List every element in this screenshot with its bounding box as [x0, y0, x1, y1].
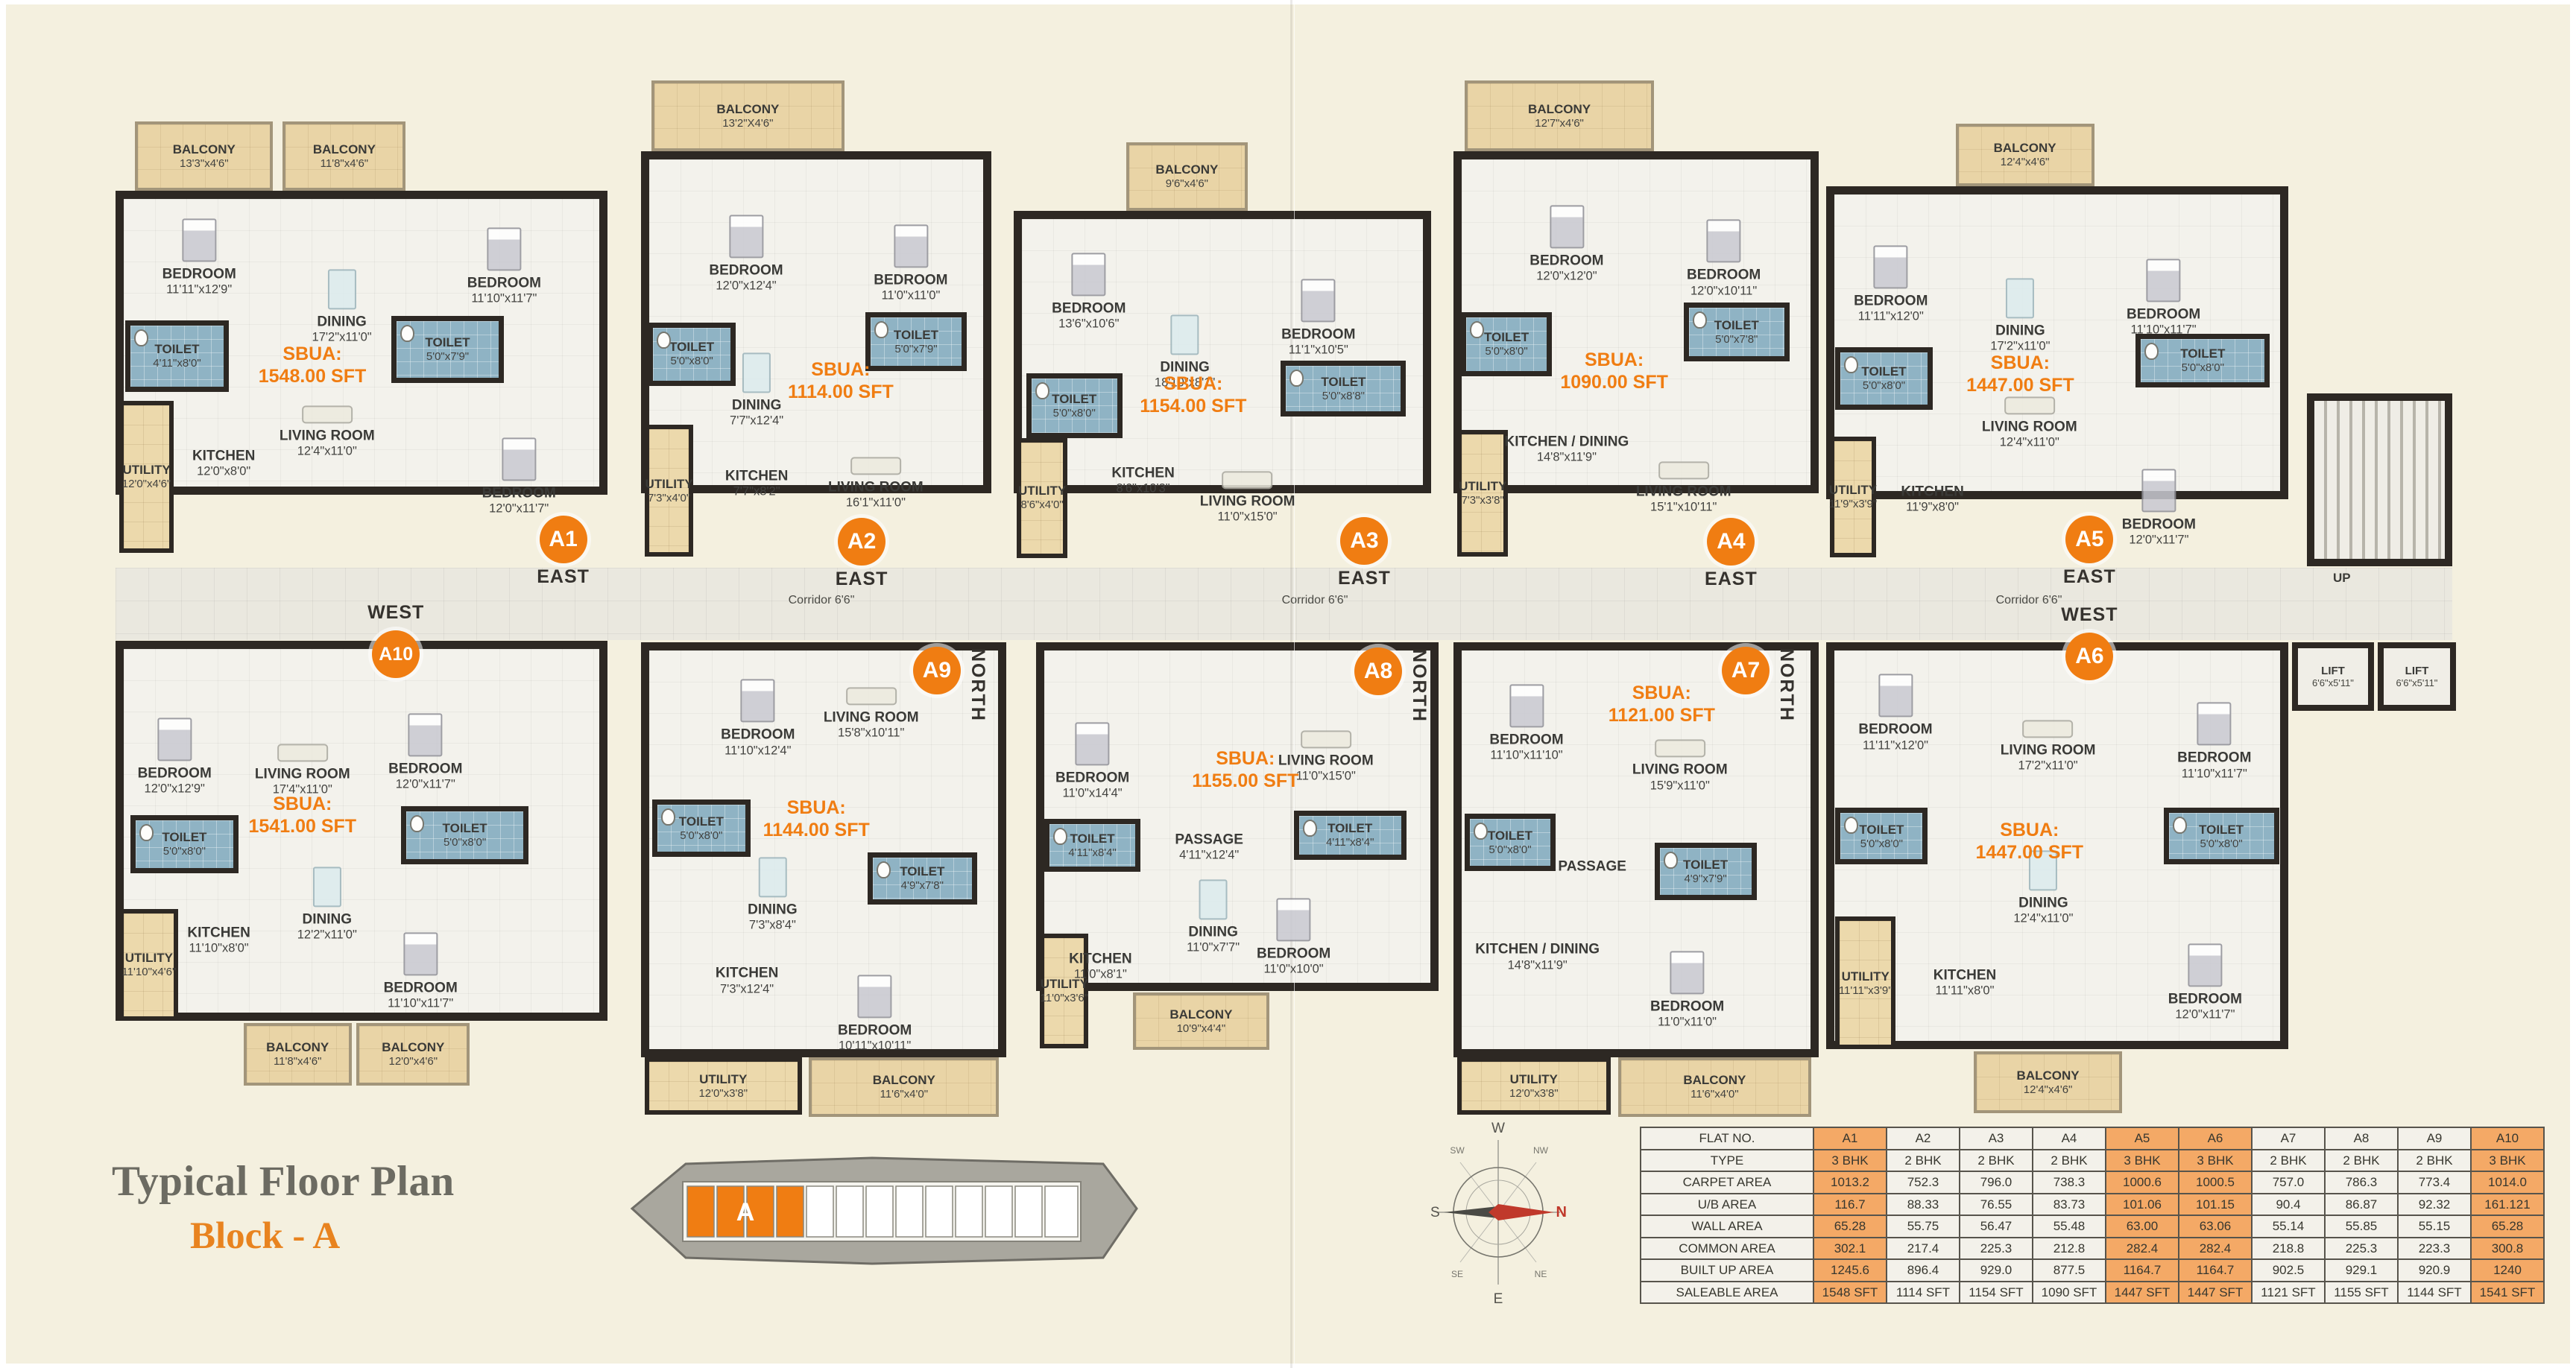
lift-2: LIFT 6'6"x5'11" [2378, 642, 2456, 711]
bed-icon [1670, 951, 1705, 995]
sbua-label: SBUA:1548.00 SFT [259, 343, 367, 387]
bed-icon [1076, 722, 1110, 765]
sbua-value: 1121.00 SFT [1609, 704, 1715, 726]
room-name: PASSAGE [1175, 832, 1243, 847]
sbua-title: SBUA: [1560, 349, 1668, 371]
unit-marker-a7: A7 [1722, 647, 1770, 694]
table-icon [742, 353, 771, 393]
table-icon [313, 867, 341, 907]
lift-label: LIFT [2321, 665, 2345, 677]
lift-label: LIFT [2405, 665, 2429, 677]
room-name: KITCHEN [1901, 484, 1963, 499]
room-name: LIVING ROOM [280, 428, 375, 443]
table-cell: 55.14 [2253, 1216, 2324, 1237]
table-cell: 773.4 [2399, 1172, 2470, 1193]
compass-sw: SW [1450, 1145, 1465, 1156]
unit-a4: BALCONY12'7"x4'6"BEDROOM12'0"x12'0"BEDRO… [1453, 78, 1819, 566]
sbua-title: SBUA: [249, 793, 357, 815]
balcony-zone: BALCONY12'7"x4'6" [1465, 80, 1655, 151]
sbua-title: SBUA: [1140, 373, 1246, 395]
room-name: TOILET [669, 340, 714, 354]
utility-zone: UTILITY11'10"x4'6" [119, 909, 178, 1021]
room-dims: 13'2"X4'6" [722, 117, 773, 130]
room-name: BEDROOM [1257, 946, 1330, 961]
sofa-icon [1301, 730, 1351, 748]
room-name: UTILITY [1829, 483, 1877, 497]
room-dims: 12'0"x11'7" [489, 502, 549, 516]
room-name: DINING [1995, 323, 2045, 338]
toilet-icon [1474, 823, 1488, 840]
sbua-label: SBUA:1447.00 SFT [1976, 819, 2084, 864]
room-dims: 4'11"x8'0" [153, 357, 201, 370]
room-name: KITCHEN [192, 448, 255, 463]
room-label: DINING12'2"x11'0" [297, 867, 357, 942]
room-label: LIVING ROOM12'4"x11'0" [280, 405, 375, 458]
table-cell: 55.15 [2399, 1216, 2470, 1237]
room-dims: 11'11"x12'9" [166, 283, 232, 297]
sbua-label: SBUA:1154.00 SFT [1140, 373, 1246, 417]
room-name: DINING [1188, 924, 1238, 940]
room-name: BEDROOM [1529, 253, 1603, 268]
room-dims: 12'4"x11'0" [2013, 912, 2073, 926]
room-label: DINING17'2"x11'0" [312, 269, 372, 344]
unit-a8: BEDROOM11'0"x14'4"LIVING ROOM11'0"x15'0"… [1036, 642, 1439, 1052]
room-name: TOILET [443, 821, 487, 835]
room-name: DINING [748, 902, 798, 918]
bed-icon [894, 224, 928, 267]
room-dims: 4'9"x7'9" [1684, 873, 1726, 885]
sbua-value: 1447.00 SFT [1976, 841, 2084, 864]
balcony-zone: BALCONY11'8"x4'6" [244, 1023, 352, 1086]
room-name: TOILET [1859, 823, 1904, 837]
room-name: BALCONY [2017, 1068, 2080, 1083]
room-name: KITCHEN / DINING [1475, 942, 1600, 957]
table-icon [758, 858, 786, 898]
room-label: BEDROOM11'0"x10'0" [1257, 898, 1330, 976]
toilet-zone: TOILET5'0"x8'0" [1461, 312, 1553, 376]
room-label: BEDROOM11'11"x12'9" [162, 218, 236, 297]
room-label: KITCHEN / DINING14'8"x11'9" [1475, 942, 1600, 972]
sofa-icon [1222, 471, 1273, 489]
room-name: BEDROOM [384, 980, 458, 995]
table-cell: 2 BHK [2326, 1150, 2397, 1171]
room-label: BEDROOM11'10"x11'7" [2177, 703, 2251, 781]
toilet-icon [1664, 852, 1678, 869]
toilet-zone: TOILET5'0"x8'0" [130, 815, 239, 873]
table-cell: 300.8 [2472, 1238, 2543, 1259]
room-label: BEDROOM12'0"x11'7" [482, 437, 556, 516]
room-name: PASSAGE [1558, 858, 1626, 874]
table-row-label: BUILT UP AREA [1641, 1260, 1813, 1281]
room-name: BEDROOM [467, 275, 541, 291]
sbua-value: 1548.00 SFT [259, 365, 367, 387]
room-label: PASSAGE4'11"x12'4" [1175, 832, 1243, 862]
room-name: BALCONY [1155, 162, 1218, 177]
room-dims: 5'0"x7'9" [426, 350, 469, 363]
room-dims: 11'11"x12'0" [1863, 738, 1928, 753]
direction-label: EAST [1338, 568, 1391, 589]
room-dims: 11'1"x10'5" [1289, 343, 1348, 357]
table-row-label: CARPET AREA [1641, 1172, 1813, 1193]
bed-icon [1509, 684, 1544, 727]
bed-icon [741, 680, 775, 723]
room-name: BEDROOM [2122, 516, 2196, 532]
room-name: LIVING ROOM [1632, 762, 1728, 778]
unit-a1: BALCONY13'3"x4'6"BALCONY11'8"x4'6"BEDROO… [116, 119, 607, 566]
room-label: KITCHEN7'3"x12'4" [716, 966, 778, 996]
balcony-zone: BALCONY12'4"x4'6" [1956, 124, 2094, 186]
room-dims: 11'9"x8'0" [1906, 501, 1959, 515]
direction-label: EAST [2063, 566, 2116, 588]
toilet-icon [874, 321, 888, 338]
table-cell: 786.3 [2326, 1172, 2397, 1193]
sofa-icon [277, 744, 328, 761]
sbua-title: SBUA: [1192, 747, 1298, 770]
room-label: KITCHEN11'11"x8'0" [1933, 968, 1996, 998]
table-cell: 1548 SFT [1814, 1282, 1886, 1303]
table-cell: 1000.6 [2106, 1172, 2178, 1193]
room-dims: 11'11"x8'0" [1936, 984, 1995, 998]
toilet-zone: TOILET5'0"x8'0" [652, 799, 751, 857]
room-name: DINING [732, 398, 782, 414]
room-name: UTILITY [1018, 484, 1066, 498]
room-label: BEDROOM12'0"x12'0" [1529, 205, 1603, 283]
room-label: KITCHEN11'0"x8'1" [1069, 951, 1131, 981]
room-name: TOILET [1052, 392, 1096, 406]
room-dims: 15'9"x11'0" [1650, 779, 1710, 793]
room-label: BEDROOM11'10"x11'7" [2127, 259, 2200, 337]
compass-west: W [1491, 1121, 1505, 1136]
unit-a5: BALCONY12'4"x4'6"BEDROOM11'11"x12'0"BEDR… [1826, 119, 2288, 566]
room-dims: 12'4"x11'0" [2000, 436, 2059, 450]
room-name: UTILITY [125, 951, 173, 965]
room-dims: 10'9"x4'4" [1177, 1022, 1226, 1035]
bed-icon [2188, 944, 2222, 987]
toilet-icon [410, 815, 424, 832]
sbua-label: SBUA:1144.00 SFT [763, 797, 870, 841]
table-flat-header: A8 [2326, 1128, 2397, 1149]
room-dims: 15'8"x10'11" [838, 726, 904, 741]
room-name: KITCHEN [716, 966, 778, 981]
room-name: LIVING ROOM [824, 709, 919, 725]
room-dims: 12'0"x3'8" [698, 1087, 748, 1100]
room-dims: 11'0"x11'0" [1658, 1016, 1717, 1030]
room-dims: 5'0"x8'0" [671, 355, 713, 367]
toilet-zone: TOILET4'9"x7'8" [868, 852, 977, 905]
sbua-label: SBUA:1447.00 SFT [1966, 352, 2074, 396]
table-cell: 3 BHK [2472, 1150, 2543, 1171]
table-cell: 56.47 [1960, 1216, 2032, 1237]
room-name: BEDROOM [1650, 999, 1724, 1015]
room-name: BEDROOM [482, 485, 556, 501]
toilet-zone: TOILET5'0"x8'0" [1026, 373, 1123, 437]
table-cell: 76.55 [1960, 1194, 2032, 1215]
room-dims: 16'1"x11'0" [846, 495, 906, 510]
room-dims: 5'0"x8'0" [680, 829, 722, 842]
room-dims: 5'0"x7'9" [894, 343, 937, 355]
plan-title: Typical Floor Plan Block - A [112, 1157, 455, 1258]
room-name: LIVING ROOM [1982, 419, 2077, 434]
table-row-label: U/B AREA [1641, 1194, 1813, 1215]
room-label: BEDROOM11'10"x11'7" [467, 227, 541, 305]
room-dims: 10'11"x10'11" [839, 1039, 911, 1054]
area-table: FLAT NO.A1A2A3A4A5A6A7A8A9A10TYPE3 BHK2 … [1640, 1127, 2545, 1304]
bed-icon [487, 227, 521, 270]
toilet-zone: TOILET5'0"x7'8" [1684, 303, 1790, 361]
sofa-icon [846, 687, 897, 705]
room-label: BEDROOM12'0"x11'7" [388, 713, 462, 791]
bed-icon [1277, 898, 1311, 941]
utility-zone: UTILITY12'0"x4'6" [119, 401, 174, 553]
direction-label: NORTH [1775, 648, 1797, 722]
compass-se: SE [1451, 1269, 1463, 1279]
table-cell: 88.33 [1887, 1194, 1959, 1215]
room-dims: 12'4"x11'0" [297, 445, 357, 459]
bed-icon [502, 437, 536, 481]
table-cell: 83.73 [2033, 1194, 2105, 1215]
room-dims: 14'8"x11'9" [1537, 450, 1597, 464]
bed-icon [1301, 279, 1336, 322]
unit-marker-a9: A9 [913, 647, 961, 694]
toilet-zone: TOILET4'11"x8'4" [1294, 811, 1407, 860]
room-name: BEDROOM [1489, 732, 1563, 747]
room-dims: 5'0"x8'8" [1322, 390, 1365, 402]
room-label: LIVING ROOM11'0"x15'0" [1200, 471, 1295, 524]
lift-dims: 6'6"x5'11" [2312, 677, 2354, 688]
room-name: BEDROOM [1858, 722, 1932, 738]
room-name: BEDROOM [162, 266, 236, 282]
compass-needle-north [1489, 1204, 1554, 1220]
compass-north: N [1556, 1204, 1567, 1220]
sbua-value: 1114.00 SFT [788, 381, 894, 403]
room-name: BALCONY [1683, 1073, 1746, 1087]
bed-icon [729, 215, 763, 258]
room-label: LIVING ROOM15'1"x10'11" [1636, 462, 1731, 515]
room-label: DINING7'7"x12'4" [730, 353, 783, 428]
room-name: LIVING ROOM [1636, 484, 1731, 500]
table-flat-header: A2 [1887, 1128, 1959, 1149]
bed-icon [1707, 220, 1741, 263]
room-dims: 11'10"x11'7" [471, 292, 537, 306]
table-cell: 752.3 [1887, 1172, 1959, 1193]
room-dims: 11'8"x4'6" [274, 1055, 321, 1068]
unit-marker-a8: A8 [1354, 647, 1402, 695]
room-name: BALCONY [266, 1040, 329, 1054]
page-fold-highlight [1294, 0, 1295, 1368]
table-cell: 101.06 [2106, 1194, 2178, 1215]
utility-zone: UTILITY11'9"x3'9" [1830, 437, 1876, 557]
room-name: UTILITY [1459, 479, 1506, 493]
room-name: BEDROOM [1687, 267, 1761, 283]
room-name: BALCONY [313, 142, 376, 156]
table-flat-header: A4 [2033, 1128, 2105, 1149]
sofa-icon [302, 405, 353, 423]
room-name: BEDROOM [1052, 300, 1126, 316]
room-label: BEDROOM12'0"x11'7" [2168, 944, 2242, 1022]
table-cell: 896.4 [1887, 1260, 1959, 1281]
table-flat-header: A1 [1814, 1128, 1886, 1149]
table-cell: 1000.5 [2179, 1172, 2251, 1193]
unit-a9: BEDROOM11'10"x12'4"LIVING ROOM15'8"x10'1… [641, 642, 1006, 1119]
table-cell: 282.4 [2106, 1238, 2178, 1259]
room-name: BALCONY [1528, 102, 1591, 116]
room-name: BALCONY [873, 1073, 935, 1087]
room-name: KITCHEN [187, 925, 250, 940]
room-name: UTILITY [1842, 969, 1890, 984]
room-name: TOILET [1683, 858, 1728, 872]
room-dims: 11'8"x4'6" [321, 157, 368, 170]
table-row-label: COMMON AREA [1641, 1238, 1813, 1259]
room-dims: 11'11"x12'0" [1858, 310, 1924, 324]
compass-nw: NW [1533, 1145, 1549, 1156]
sbua-title: SBUA: [1609, 682, 1715, 704]
table-cell: 1013.2 [1814, 1172, 1886, 1193]
toilet-zone: TOILET5'0"x8'0" [2135, 334, 2270, 387]
table-cell: 1240 [2472, 1260, 2543, 1281]
room-dims: 4'11"x8'4" [1326, 836, 1374, 849]
table-corner-cell: FLAT NO. [1641, 1128, 1813, 1149]
room-dims: 11'0"x15'0" [1218, 510, 1278, 525]
floor-plan-page: UP LIFT 6'6"x5'11" LIFT 6'6"x5'11" Corri… [0, 0, 2576, 1368]
direction-label: NORTH [967, 648, 988, 722]
table-cell: 1447 SFT [2106, 1282, 2178, 1303]
room-dims: 11'10"x12'4" [724, 744, 791, 758]
balcony-zone: BALCONY12'0"x4'6" [356, 1023, 470, 1086]
room-name: BEDROOM [388, 761, 462, 776]
room-dims: 12'0"x11'7" [2129, 533, 2188, 548]
room-name: TOILET [162, 830, 206, 844]
room-dims: 12'0"x11'7" [396, 778, 455, 792]
room-label: BEDROOM11'10"x11'7" [384, 932, 458, 1010]
table-cell: 63.00 [2106, 1216, 2178, 1237]
table-cell: 116.7 [1814, 1194, 1886, 1215]
table-cell: 302.1 [1814, 1238, 1886, 1259]
room-dims: 11'9"x3'9" [1829, 498, 1877, 510]
room-name: TOILET [1328, 821, 1372, 835]
room-name: BEDROOM [2168, 992, 2242, 1007]
unit-marker-a10: A10 [372, 630, 420, 678]
room-dims: 8'6"x10'3" [1117, 482, 1170, 496]
room-name: LIVING ROOM [2001, 742, 2096, 758]
table-cell: 738.3 [2033, 1172, 2105, 1193]
balcony-zone: BALCONY9'6"x4'6" [1126, 142, 1247, 211]
bed-icon [1550, 205, 1584, 248]
sofa-icon [1655, 740, 1705, 758]
room-label: BEDROOM12'0"x11'7" [2122, 469, 2196, 547]
direction-label: EAST [537, 566, 590, 588]
room-label: DINING17'2"x11'0" [1990, 278, 2050, 353]
toilet-zone: TOILET5'0"x8'0" [1835, 347, 1932, 410]
table-cell: 1121 SFT [2253, 1282, 2324, 1303]
room-label: BEDROOM11'11"x12'0" [1854, 245, 1928, 323]
page-fold [1290, 0, 1292, 1368]
room-dims: 11'6"x4'0" [880, 1088, 928, 1101]
room-dims: 5'0"x8'0" [443, 836, 486, 849]
room-label: BEDROOM12'0"x12'4" [709, 215, 783, 293]
room-name: BALCONY [1994, 141, 2056, 155]
room-name: LIVING ROOM [255, 766, 350, 782]
toilet-icon [134, 329, 148, 346]
table-cell: 757.0 [2253, 1172, 2324, 1193]
lift-dims: 6'6"x5'11" [2396, 677, 2438, 688]
room-dims: 4'9"x7'8" [901, 879, 944, 892]
table-cell: 2 BHK [1960, 1150, 2032, 1171]
room-name: BEDROOM [1854, 293, 1928, 308]
toilet-icon [1470, 321, 1484, 338]
toilet-icon [2144, 343, 2159, 360]
utility-zone: UTILITY7'3"x4'0" [645, 425, 694, 557]
table-flat-header: A3 [1960, 1128, 2032, 1149]
room-name: BEDROOM [721, 727, 795, 743]
room-dims: 8'6"x4'0" [1020, 498, 1063, 511]
sbua-title: SBUA: [259, 343, 367, 365]
table-icon [2006, 278, 2034, 318]
toilet-icon [2173, 817, 2187, 834]
room-label: BEDROOM11'0"x11'0" [1650, 951, 1724, 1030]
unit-marker-a2: A2 [838, 518, 885, 566]
unit-marker-a3: A3 [1340, 517, 1388, 565]
room-label: BEDROOM11'11"x12'0" [1858, 674, 1932, 753]
room-label: BEDROOM12'0"x10'11" [1687, 220, 1761, 298]
room-name: BEDROOM [2127, 306, 2200, 322]
room-dims: 12'0"x10'11" [1690, 284, 1757, 298]
room-dims: 11'11"x3'9" [1839, 984, 1892, 997]
room-name: TOILET [1321, 375, 1366, 389]
room-name: TOILET [1070, 832, 1115, 846]
room-dims: 12'0"x11'7" [2175, 1008, 2235, 1022]
toilet-icon [1303, 820, 1317, 837]
table-cell: 920.9 [2399, 1260, 2470, 1281]
room-dims: 5'0"x8'0" [1860, 837, 1903, 850]
compass-east: E [1494, 1291, 1503, 1305]
table-cell: 3 BHK [2179, 1150, 2251, 1171]
block-subtitle: Block - A [190, 1215, 455, 1258]
room-name: BALCONY [382, 1040, 444, 1054]
table-cell: 929.1 [2326, 1260, 2397, 1281]
sbua-title: SBUA: [788, 358, 894, 381]
balcony-zone: BALCONY13'3"x4'6" [135, 121, 273, 191]
sbua-title: SBUA: [1966, 352, 2074, 374]
bed-icon [2141, 469, 2176, 512]
room-dims: 17'2"x11'0" [2018, 759, 2078, 773]
room-name: TOILET [1484, 330, 1529, 344]
room-label: KITCHEN8'6"x10'3" [1111, 465, 1174, 495]
room-dims: 11'0"x10'0" [1264, 963, 1324, 977]
table-cell: 1245.6 [1814, 1260, 1886, 1281]
room-name: BALCONY [173, 142, 236, 156]
bed-icon [408, 713, 443, 756]
room-name: KITCHEN / DINING [1505, 434, 1629, 449]
room-name: UTILITY [1510, 1072, 1558, 1086]
room-dims: 7'7"x12'4" [730, 414, 783, 428]
page-title: Typical Floor Plan [112, 1157, 455, 1206]
staircase [2307, 393, 2452, 566]
room-dims: 11'0"x7'7" [1187, 940, 1240, 954]
table-cell: 65.28 [1814, 1216, 1886, 1237]
room-name: UTILITY [699, 1072, 747, 1086]
room-name: TOILET [2180, 346, 2225, 361]
table-cell: 929.0 [1960, 1260, 2032, 1281]
toilet-icon [1844, 356, 1858, 373]
room-label: DINING7'3"x8'4" [748, 858, 798, 933]
room-dims: 11'10"x4'6" [121, 966, 176, 978]
room-dims: 12'0"x8'0" [197, 465, 250, 479]
room-name: BEDROOM [138, 765, 212, 781]
bed-icon [858, 975, 892, 1019]
toilet-icon [657, 332, 671, 349]
utility-zone: UTILITY8'6"x4'0" [1017, 438, 1067, 558]
room-dims: 5'0"x8'0" [1489, 843, 1531, 856]
